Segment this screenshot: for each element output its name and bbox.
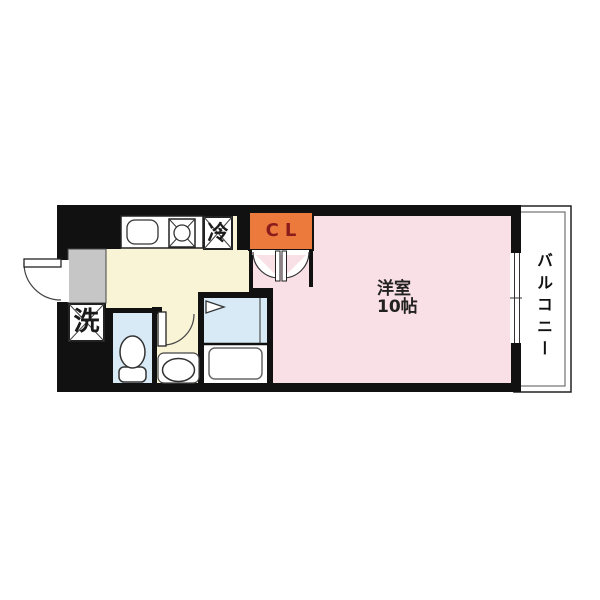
entrance-genkan [68,249,106,303]
wash-basin-icon [158,353,199,383]
sliding-window-icon [510,253,522,343]
kitchen-counter [121,216,203,248]
floor-plan-canvas: 冷 洗 CL 洋室 10帖 バルコニー [0,0,600,600]
bathtub-icon [209,348,262,379]
closet-label: CL [249,221,313,241]
entrance-door-swing-icon [24,259,69,302]
refrigerator-label: 冷 [204,222,232,244]
toilet-icon [119,336,146,382]
kitchen-sink-icon [127,220,158,244]
gas-stove-icon [169,219,195,247]
washer-label: 洗 [69,309,104,336]
main-room-label: 洋室 10帖 [377,281,418,316]
floor-plan-drawing [0,0,600,600]
main-room-size: 10帖 [377,297,418,317]
balcony-label: バルコニー [531,252,555,384]
